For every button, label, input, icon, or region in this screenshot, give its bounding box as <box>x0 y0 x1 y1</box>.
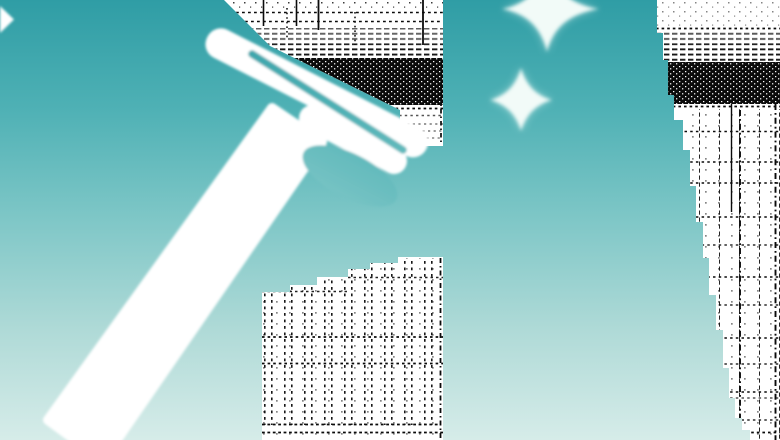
illustration-canvas <box>0 0 780 440</box>
squeegee-cleaning-illustration <box>0 0 780 440</box>
